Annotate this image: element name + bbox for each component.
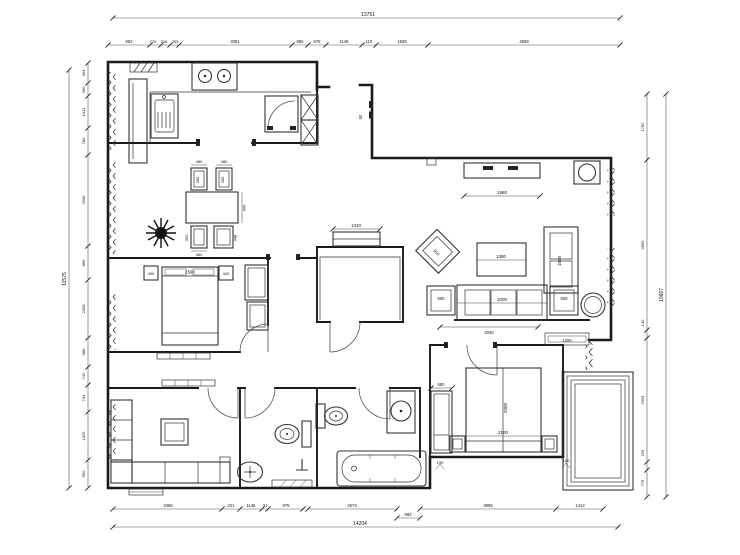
dim-label: 1412 <box>575 503 585 508</box>
small-table <box>161 419 188 445</box>
dimension-bottom-segments: 2456 221 1146 31 975 2573 993 3995 1412 <box>110 503 605 521</box>
bed-master <box>162 267 218 345</box>
loveseat-dim-label: 1600 <box>557 255 562 266</box>
window-kitchen <box>109 72 116 150</box>
walls-interior <box>108 90 589 488</box>
dim-label: 4569 <box>519 39 529 44</box>
dim-label: 975 <box>283 503 291 508</box>
stove <box>192 63 237 90</box>
closet <box>428 385 454 453</box>
dim-label: 3381 <box>230 39 240 44</box>
gap-dim-label: 190 <box>437 460 444 465</box>
floor-plan-page: 13751 952 770 226 253 3381 955 578 1145 … <box>0 0 740 555</box>
floor-plant <box>581 293 605 317</box>
dining-table <box>186 192 238 223</box>
dining <box>146 165 242 251</box>
dim-label: 253 <box>172 39 179 44</box>
sofa-dim-label: 2000 <box>497 297 508 302</box>
nightstand-dim-label: 400 <box>223 271 230 276</box>
bed2-dim-label: 2300 <box>503 402 508 413</box>
wardrobe <box>245 265 268 330</box>
dim-label: 221 <box>228 503 236 508</box>
chair-dim-label: 300 <box>195 176 200 183</box>
dim-label: 1425 <box>81 431 86 441</box>
entry-shoe-cabinet <box>301 95 318 145</box>
armchair-dim-label: 910 <box>432 248 441 257</box>
dim-label: 1838 <box>397 39 407 44</box>
tv-cabinet <box>464 163 540 178</box>
dimension-right-segments: 1782 4599 140 3354 255 775 <box>640 91 650 499</box>
l-sofa <box>111 400 230 483</box>
fridge <box>265 96 298 132</box>
side-table-dim-label: 600 <box>561 296 569 301</box>
master-bedroom <box>144 265 268 386</box>
window-dining <box>109 162 116 254</box>
bath-window-sill <box>272 480 312 487</box>
closet-dim-label: 580 <box>438 382 446 387</box>
window-living-2 <box>608 248 615 310</box>
dim-label: 11575 <box>62 272 68 286</box>
chair-dim-label: 480 <box>196 252 203 257</box>
dim-label: 2505 <box>81 195 86 205</box>
dim-label: 360 <box>81 86 86 93</box>
bathroom-small <box>238 421 313 487</box>
dim-label: 10667 <box>659 288 665 302</box>
dim-label: 770 <box>150 39 157 44</box>
plant <box>146 218 176 248</box>
table-dim-label: 900 <box>242 204 247 211</box>
window-master <box>109 294 116 350</box>
dim-label: 354 <box>81 69 86 76</box>
shower-head <box>296 459 308 470</box>
nightstand <box>542 436 557 452</box>
armchair: 910 <box>416 229 460 273</box>
dim-label: 140 <box>640 319 645 326</box>
dimension-top-segments: 952 770 226 253 3381 955 578 1145 110 18… <box>105 39 622 48</box>
bathtub <box>337 451 426 486</box>
dimension-bottom-overall: 14204 <box>110 521 620 530</box>
nightstand-dim-label: 400 <box>148 271 155 276</box>
hall-cabinet-dim-label: 1200 <box>562 338 572 343</box>
threshold <box>129 489 163 495</box>
living-room: 910 <box>416 161 605 345</box>
dim-label: 2456 <box>163 503 173 508</box>
dim-label: 866 <box>81 259 86 266</box>
dim-label: 3354 <box>640 395 645 405</box>
second-living-room <box>111 400 230 495</box>
kitchen <box>129 63 318 163</box>
bed2-dim-label: 2100 <box>498 430 509 435</box>
dim-label: 255 <box>640 449 645 456</box>
window-living-1 <box>608 168 615 216</box>
dim-label: 1145 <box>339 39 349 44</box>
bed-dim-label: 1590 <box>185 270 195 275</box>
chair-dim-label: 480 <box>221 159 228 164</box>
gap-dim-label: 190 <box>563 458 570 463</box>
windows <box>109 72 615 460</box>
dim-label: 742 <box>81 372 86 379</box>
dim-label: 1011 <box>81 107 86 116</box>
dim-label: 1782 <box>640 122 645 132</box>
dim-label: 4599 <box>640 240 645 250</box>
dim-label: 31 <box>263 503 268 508</box>
tv-dim-label: 1980 <box>497 190 508 195</box>
dimension-top-overall: 13751 <box>110 12 622 21</box>
dim-label: 226 <box>161 39 168 44</box>
dim-label: 650 <box>81 470 86 477</box>
dim-label: 775 <box>640 479 645 486</box>
dimension-left-segments: 354 360 1011 780 2505 866 2358 988 742 7… <box>81 60 91 490</box>
dimension-right-overall: 10667 <box>659 91 669 499</box>
chair-dim-label: 350 <box>184 234 189 241</box>
coffee-table-dim-label: 1380 <box>496 254 507 259</box>
dimension-left-overall: 11575 <box>62 67 72 490</box>
chair-dim-label: 300 <box>220 176 225 183</box>
bedroom-2 <box>436 368 570 469</box>
doors <box>208 322 497 419</box>
dim-label: 780 <box>81 137 86 144</box>
dim-label: 743 <box>81 394 86 401</box>
toilet <box>316 404 348 428</box>
study-cabinet-dim-label: 1310 <box>351 223 362 228</box>
vanity <box>387 391 415 433</box>
floor-plan-drawing: 13751 952 770 226 253 3381 955 578 1145 … <box>0 0 740 555</box>
dim-label: 988 <box>81 348 86 355</box>
dim-label: 955 <box>297 39 305 44</box>
washbasin <box>238 462 263 482</box>
dim-label: 110 <box>366 39 373 44</box>
chair-dim-label: 348 <box>233 234 238 241</box>
dim-label: 578 <box>314 39 322 44</box>
dim-label: 2573 <box>347 503 357 508</box>
tall-cabinet <box>129 79 147 163</box>
sink <box>151 94 178 138</box>
dim-label: 993 <box>405 512 413 517</box>
corridor-shelf <box>157 353 215 386</box>
bathroom-main <box>316 391 426 486</box>
dim-label: 2358 <box>81 304 86 314</box>
dim-label: 3995 <box>483 503 493 508</box>
dim-label: 1146 <box>246 503 256 508</box>
study-room <box>320 226 400 320</box>
toilet <box>275 421 311 447</box>
ac-unit <box>574 161 600 184</box>
coffee-table <box>477 243 526 276</box>
sofa-wall-dim-label: 2030 <box>484 330 494 335</box>
dim-label: 13751 <box>361 12 375 18</box>
balcony <box>563 372 633 490</box>
dim-label: 14204 <box>353 521 367 527</box>
side-table-dim-label: 600 <box>438 296 446 301</box>
window-room-bl <box>109 404 116 460</box>
entry-width-label: 60 <box>358 114 363 119</box>
chair-dim-label: 480 <box>196 159 203 164</box>
dim-label: 952 <box>126 39 134 44</box>
sofa <box>457 285 547 320</box>
